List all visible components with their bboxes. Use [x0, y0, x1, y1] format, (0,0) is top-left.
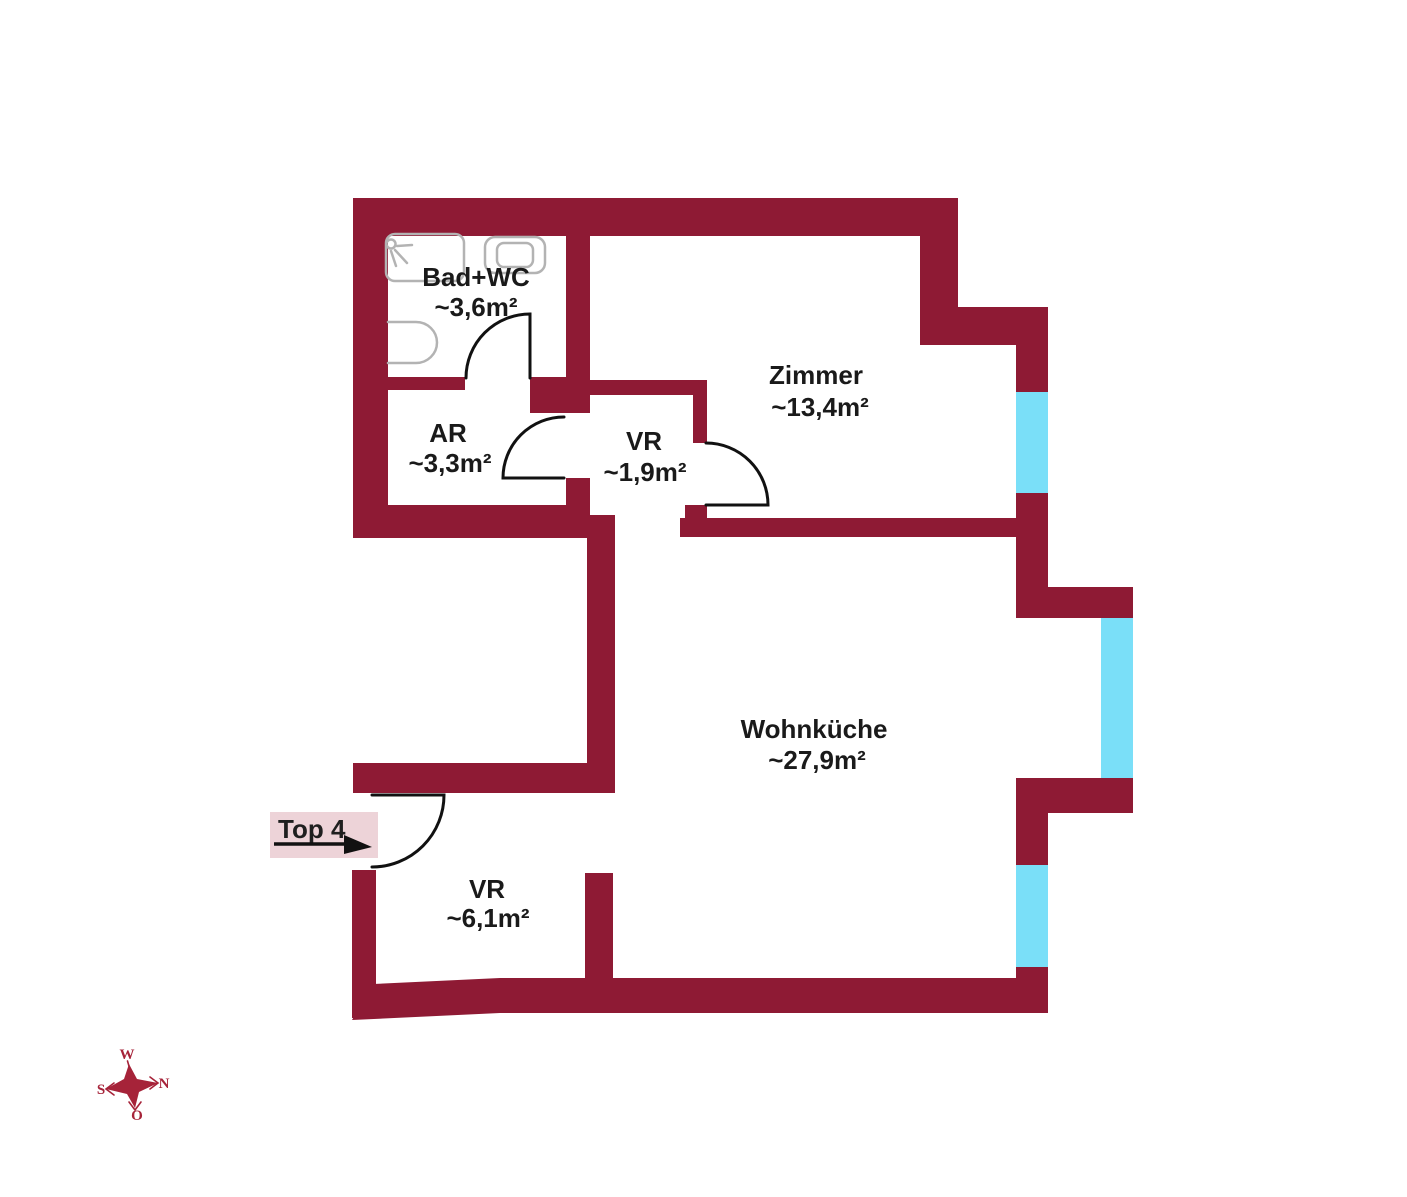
room-label-wohnkueche: Wohnküche ~27,9m²: [741, 714, 888, 775]
door-arc-badwc: [466, 314, 530, 378]
floor-plan-canvas: Bad+WC ~3,6m² AR ~3,3m² VR ~1,9m² Zimmer…: [0, 0, 1407, 1197]
room-name: VR: [469, 874, 505, 904]
shower-head-icon: [387, 240, 413, 267]
wall-wohnkueche-left: [587, 515, 615, 793]
wall-vr-large-divider: [585, 873, 613, 980]
room-area: ~1,9m²: [603, 457, 686, 487]
room-name: Zimmer: [769, 360, 863, 390]
window-wohnkueche-bay: [1101, 618, 1133, 778]
wall-left-lower: [352, 870, 376, 1018]
floor-plan-page: Bad+WC ~3,6m² AR ~3,3m² VR ~1,9m² Zimmer…: [0, 0, 1407, 1197]
room-name: Bad+WC: [422, 262, 530, 292]
wall-top: [353, 198, 958, 236]
compass-letter-top: W: [120, 1047, 135, 1063]
window-wohnkueche-lower: [1016, 865, 1048, 967]
compass-letter-bottom: O: [131, 1108, 143, 1124]
unit-label-text: Top 4: [278, 814, 346, 844]
door-arc-ar: [503, 417, 564, 478]
unit-label: Top 4: [270, 812, 378, 858]
room-label-zimmer: Zimmer ~13,4m²: [769, 360, 869, 422]
windows: [1016, 392, 1133, 967]
wall-right-above-window1: [1016, 345, 1048, 392]
room-label-vr-small: VR ~1,9m²: [603, 426, 686, 487]
room-labels: Bad+WC ~3,6m² AR ~3,3m² VR ~1,9m² Zimmer…: [408, 262, 887, 933]
wall-left-upper: [353, 198, 388, 538]
room-area: ~3,3m²: [408, 448, 491, 478]
compass-letter-left: S: [97, 1082, 105, 1098]
room-area: ~13,4m²: [771, 392, 869, 422]
room-name: Wohnküche: [741, 714, 888, 744]
wall-right-lower: [1016, 813, 1048, 865]
wall-bay-bottom: [1016, 778, 1133, 813]
wall-ar-bottom: [353, 505, 590, 538]
wall-badwc-bottom-left: [388, 377, 465, 390]
wall-bottom-right: [500, 978, 1048, 1013]
window-zimmer: [1016, 392, 1048, 493]
room-area: ~6,1m²: [446, 903, 529, 933]
wall-vr-small-right: [693, 380, 707, 443]
washbasin: [388, 322, 437, 363]
room-label-vr-large: VR ~6,1m²: [446, 874, 529, 933]
door-arc-zimmer: [706, 443, 768, 505]
wall-badwc-bottom-right: [530, 377, 590, 413]
wall-vr-small-top: [590, 380, 707, 395]
wall-zimmer-wohnkueche-divider: [680, 518, 1048, 537]
compass-star-icon: [106, 1064, 158, 1108]
room-label-ar: AR ~3,3m²: [408, 418, 491, 478]
room-area: ~27,9m²: [768, 745, 866, 775]
compass-letter-right: N: [159, 1076, 170, 1092]
door-arc-entrance: [372, 795, 444, 867]
room-label-badwc: Bad+WC ~3,6m²: [422, 262, 530, 322]
wall-vr-large-top: [353, 763, 613, 793]
wall-zimmer-door-stub: [685, 505, 707, 520]
room-name: VR: [626, 426, 662, 456]
wall-topright-step: [920, 307, 1048, 345]
room-area: ~3,6m²: [434, 292, 517, 322]
compass-rose: W N S O: [97, 1047, 170, 1124]
room-name: AR: [429, 418, 467, 448]
wall-ar-door-stub: [566, 478, 590, 520]
wall-bay-top: [1016, 587, 1133, 618]
